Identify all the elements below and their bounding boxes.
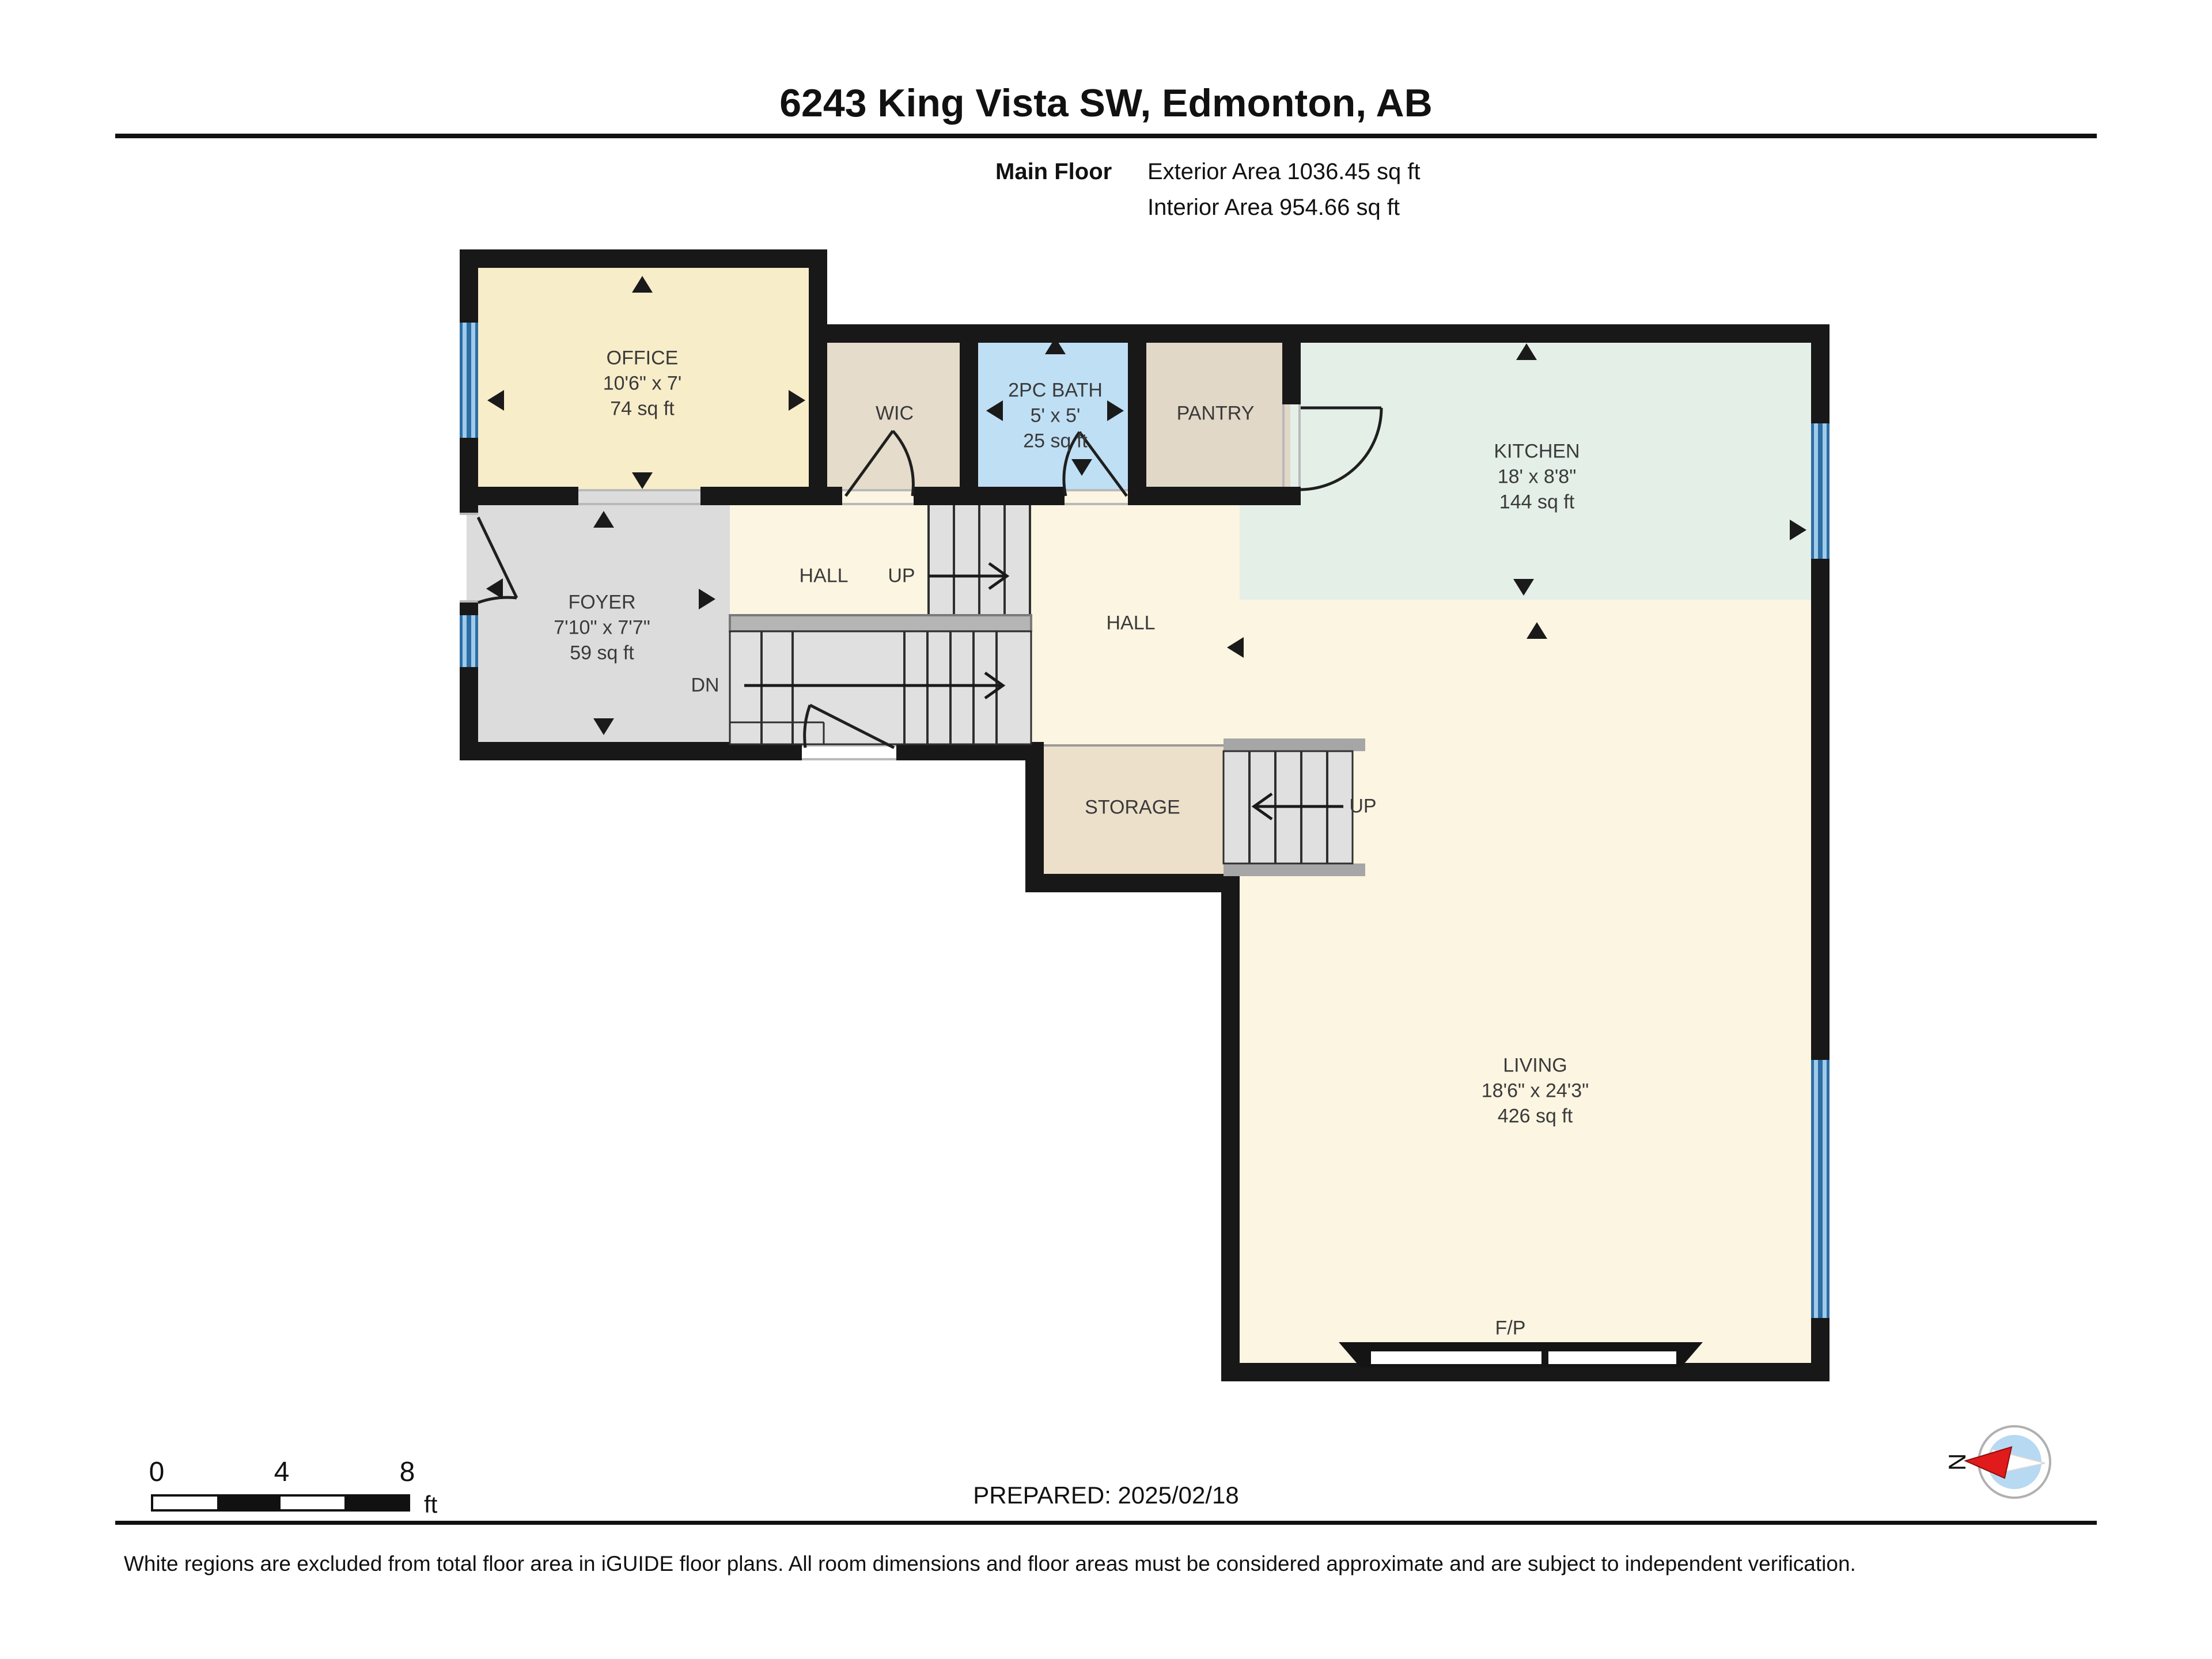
fireplace (1339, 1342, 1703, 1368)
pantry-door-swing (1301, 408, 1381, 490)
scale-bar (151, 1494, 410, 1512)
foyer-area: 59 sq ft (570, 642, 634, 665)
kitchen-area: 144 sq ft (1499, 491, 1574, 514)
scale-tick-4: 4 (274, 1456, 290, 1488)
compass-north-label: N (1944, 1453, 1971, 1471)
scale-unit-label: ft (424, 1491, 437, 1518)
staircase-landing-rail (730, 615, 1031, 631)
page-title: 6243 King Vista SW, Edmonton, AB (779, 81, 1433, 126)
scale-segment (153, 1497, 217, 1509)
living-label: LIVING (1503, 1055, 1567, 1077)
foyer-dims: 7'10" x 7'7" (554, 617, 650, 639)
header-divider (115, 134, 2097, 138)
stairs-up1-label: UP (888, 565, 915, 588)
floor-label: Main Floor (995, 159, 1112, 185)
office-label: OFFICE (607, 347, 679, 370)
pantry-label: PANTRY (1177, 403, 1255, 425)
office-dims: 10'6" x 7' (603, 373, 682, 395)
scale-segment (344, 1497, 408, 1509)
living-dims: 18'6" x 24'3" (1482, 1080, 1589, 1103)
scale-tick-8: 8 (400, 1456, 415, 1488)
footer-divider (115, 1521, 2097, 1525)
living-area: 426 sq ft (1498, 1105, 1573, 1128)
wic-door-swing (846, 431, 913, 496)
bath-label: 2PC BATH (1008, 380, 1103, 402)
hall1-label: HALL (799, 565, 848, 588)
staircase-main-up-flight (929, 505, 1030, 615)
kitchen-label: KITCHEN (1494, 441, 1580, 463)
living-dimension-arrows (1227, 622, 1547, 658)
wic-label: WIC (876, 403, 914, 425)
exterior-area-label: Exterior Area 1036.45 sq ft (1147, 159, 1421, 185)
bath-dims: 5' x 5' (1031, 405, 1081, 427)
staircase-main-dn-flight (730, 631, 1031, 744)
storage-label: STORAGE (1085, 797, 1180, 819)
floor-plan-page: 6243 King Vista SW, Edmonton, AB Main Fl… (0, 0, 2212, 1659)
scale-segment (217, 1497, 281, 1509)
plan-overlay-graphics (0, 0, 2212, 1659)
kitchen-dims: 18' x 8'8" (1498, 466, 1577, 488)
office-area: 74 sq ft (610, 398, 675, 421)
compass-icon (1965, 1426, 2050, 1498)
prepared-date: PREPARED: 2025/02/18 (973, 1482, 1239, 1509)
bath-area: 25 sq ft (1023, 430, 1088, 453)
fireplace-label: F/P (1495, 1317, 1526, 1340)
stairs-dn-label: DN (691, 675, 719, 697)
stairs-up2-label: UP (1349, 796, 1376, 818)
foyer-label: FOYER (568, 592, 635, 614)
scale-tick-0: 0 (149, 1456, 165, 1488)
interior-area-label: Interior Area 954.66 sq ft (1147, 195, 1400, 221)
scale-segment (281, 1497, 344, 1509)
footer-disclaimer: White regions are excluded from total fl… (124, 1552, 1856, 1576)
hall2-label: HALL (1106, 612, 1155, 635)
